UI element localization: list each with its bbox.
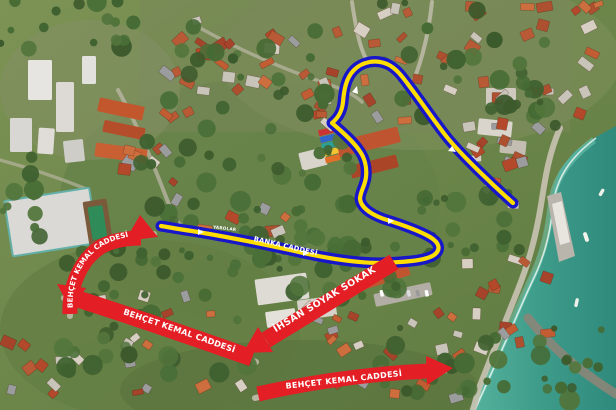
tree: [187, 198, 199, 210]
tree: [483, 377, 491, 385]
tree: [582, 358, 593, 369]
tree: [223, 158, 237, 172]
tree: [151, 256, 162, 267]
tree: [531, 346, 550, 365]
tree: [513, 56, 528, 71]
tree: [445, 192, 466, 213]
tree: [160, 365, 178, 383]
tree: [0, 208, 6, 215]
tree: [28, 206, 43, 221]
tree: [136, 247, 147, 258]
tree: [446, 50, 465, 69]
tree: [514, 244, 525, 255]
tree: [109, 290, 119, 300]
house: [389, 389, 400, 399]
tree: [537, 99, 544, 106]
tree: [390, 242, 400, 252]
tree: [361, 237, 370, 246]
tree: [144, 196, 164, 216]
tree: [440, 63, 448, 71]
tree: [539, 37, 550, 48]
tree: [593, 362, 603, 372]
tree: [422, 22, 434, 34]
tree: [8, 27, 15, 34]
tree: [464, 48, 482, 66]
tree: [230, 191, 251, 212]
tree: [22, 165, 39, 182]
tree: [291, 206, 301, 216]
tree: [318, 99, 329, 110]
tree: [230, 259, 241, 270]
house: [360, 74, 369, 86]
tree: [175, 43, 190, 58]
tree: [433, 199, 439, 205]
tree: [555, 382, 567, 394]
tree: [111, 35, 122, 46]
tree: [110, 263, 128, 281]
tree: [453, 75, 462, 84]
tree: [54, 338, 73, 357]
house: [462, 121, 476, 132]
building: [56, 82, 74, 132]
tree: [489, 350, 507, 368]
aerial-map-canvas: YAROLAR BANKA CADDESİ BEHÇET KEMAL CADDE…: [0, 0, 616, 410]
tree: [271, 162, 284, 175]
house: [316, 111, 327, 118]
tree: [401, 385, 412, 396]
house: [496, 117, 508, 130]
tree: [446, 222, 461, 237]
tree: [174, 156, 185, 167]
tree: [146, 159, 156, 169]
tree: [417, 190, 433, 206]
tree: [516, 75, 531, 90]
tree: [296, 104, 314, 122]
tree: [139, 134, 155, 150]
tree: [181, 66, 198, 83]
tree: [567, 383, 577, 393]
tree: [497, 380, 510, 393]
tree: [417, 206, 426, 215]
tree: [196, 172, 216, 192]
tree: [294, 230, 309, 245]
tree: [159, 248, 171, 260]
tree: [184, 251, 194, 261]
tree: [120, 346, 137, 363]
tree: [307, 73, 314, 80]
building: [82, 56, 96, 84]
tree: [30, 223, 39, 232]
tree: [386, 336, 405, 355]
tree: [52, 6, 61, 15]
tree: [156, 265, 171, 280]
tree: [461, 247, 470, 256]
tree: [324, 145, 333, 154]
tree: [256, 38, 276, 58]
tree: [496, 211, 512, 227]
tree: [401, 46, 418, 63]
tree: [233, 316, 242, 325]
tree: [160, 91, 178, 109]
house: [462, 259, 473, 269]
tree: [494, 95, 514, 115]
tree: [448, 242, 454, 248]
tree: [83, 355, 103, 375]
tree: [339, 195, 357, 213]
building: [28, 60, 52, 100]
tree: [561, 356, 571, 366]
house: [390, 2, 400, 14]
tree: [525, 90, 533, 98]
tree: [485, 102, 498, 115]
tree: [598, 326, 605, 333]
tree: [277, 266, 283, 272]
tree: [97, 332, 110, 345]
tree: [307, 23, 323, 39]
tree: [179, 138, 197, 156]
tree: [26, 152, 37, 163]
house: [206, 311, 215, 318]
tree: [186, 19, 201, 34]
tree: [198, 119, 216, 137]
tree: [216, 101, 230, 115]
tree: [265, 123, 276, 134]
tree: [172, 272, 183, 283]
tree: [254, 206, 261, 213]
tree: [21, 41, 37, 57]
tree: [141, 291, 148, 298]
tree: [237, 74, 244, 81]
tree: [478, 335, 494, 351]
building: [63, 139, 85, 163]
house: [398, 117, 412, 125]
tree: [257, 154, 265, 162]
house: [368, 39, 381, 48]
house: [222, 71, 236, 83]
tree: [207, 254, 214, 261]
tree: [468, 2, 485, 19]
tree: [512, 100, 521, 109]
house: [472, 308, 481, 320]
house: [515, 336, 525, 348]
tree: [273, 90, 283, 100]
tree: [454, 353, 475, 374]
tree: [490, 70, 510, 90]
tree: [126, 16, 140, 30]
tree: [299, 169, 306, 176]
tree: [39, 23, 49, 33]
tree: [204, 150, 214, 160]
tree: [470, 243, 479, 252]
building: [10, 118, 32, 152]
tree: [304, 174, 321, 191]
tree: [306, 53, 315, 62]
tree: [271, 72, 285, 86]
tree: [541, 375, 547, 381]
tree: [309, 230, 325, 246]
tree: [488, 198, 496, 206]
tree: [343, 161, 356, 174]
tree: [342, 152, 352, 162]
tree: [397, 325, 403, 331]
house: [118, 163, 132, 176]
tree: [551, 325, 557, 331]
house: [520, 3, 534, 11]
tree: [550, 120, 561, 131]
tree: [5, 183, 23, 201]
tree: [198, 288, 211, 301]
tree: [190, 52, 205, 67]
building: [37, 127, 55, 154]
tree: [238, 213, 249, 224]
tree: [98, 280, 110, 292]
tree: [102, 13, 114, 25]
aerial-map: YAROLAR BANKA CADDESİ BEHÇET KEMAL CADDE…: [0, 0, 616, 410]
tree: [158, 346, 178, 366]
tree: [496, 230, 511, 245]
tree: [56, 357, 76, 377]
tree: [455, 387, 463, 395]
tree: [228, 53, 238, 63]
tree: [441, 195, 448, 202]
tree: [179, 247, 185, 253]
house: [197, 86, 210, 95]
tree: [486, 32, 502, 48]
tree: [543, 384, 553, 394]
tree: [209, 362, 229, 382]
tree: [90, 39, 98, 47]
tree: [31, 194, 37, 200]
house: [478, 76, 490, 88]
tree: [290, 276, 310, 296]
tree: [206, 43, 224, 61]
